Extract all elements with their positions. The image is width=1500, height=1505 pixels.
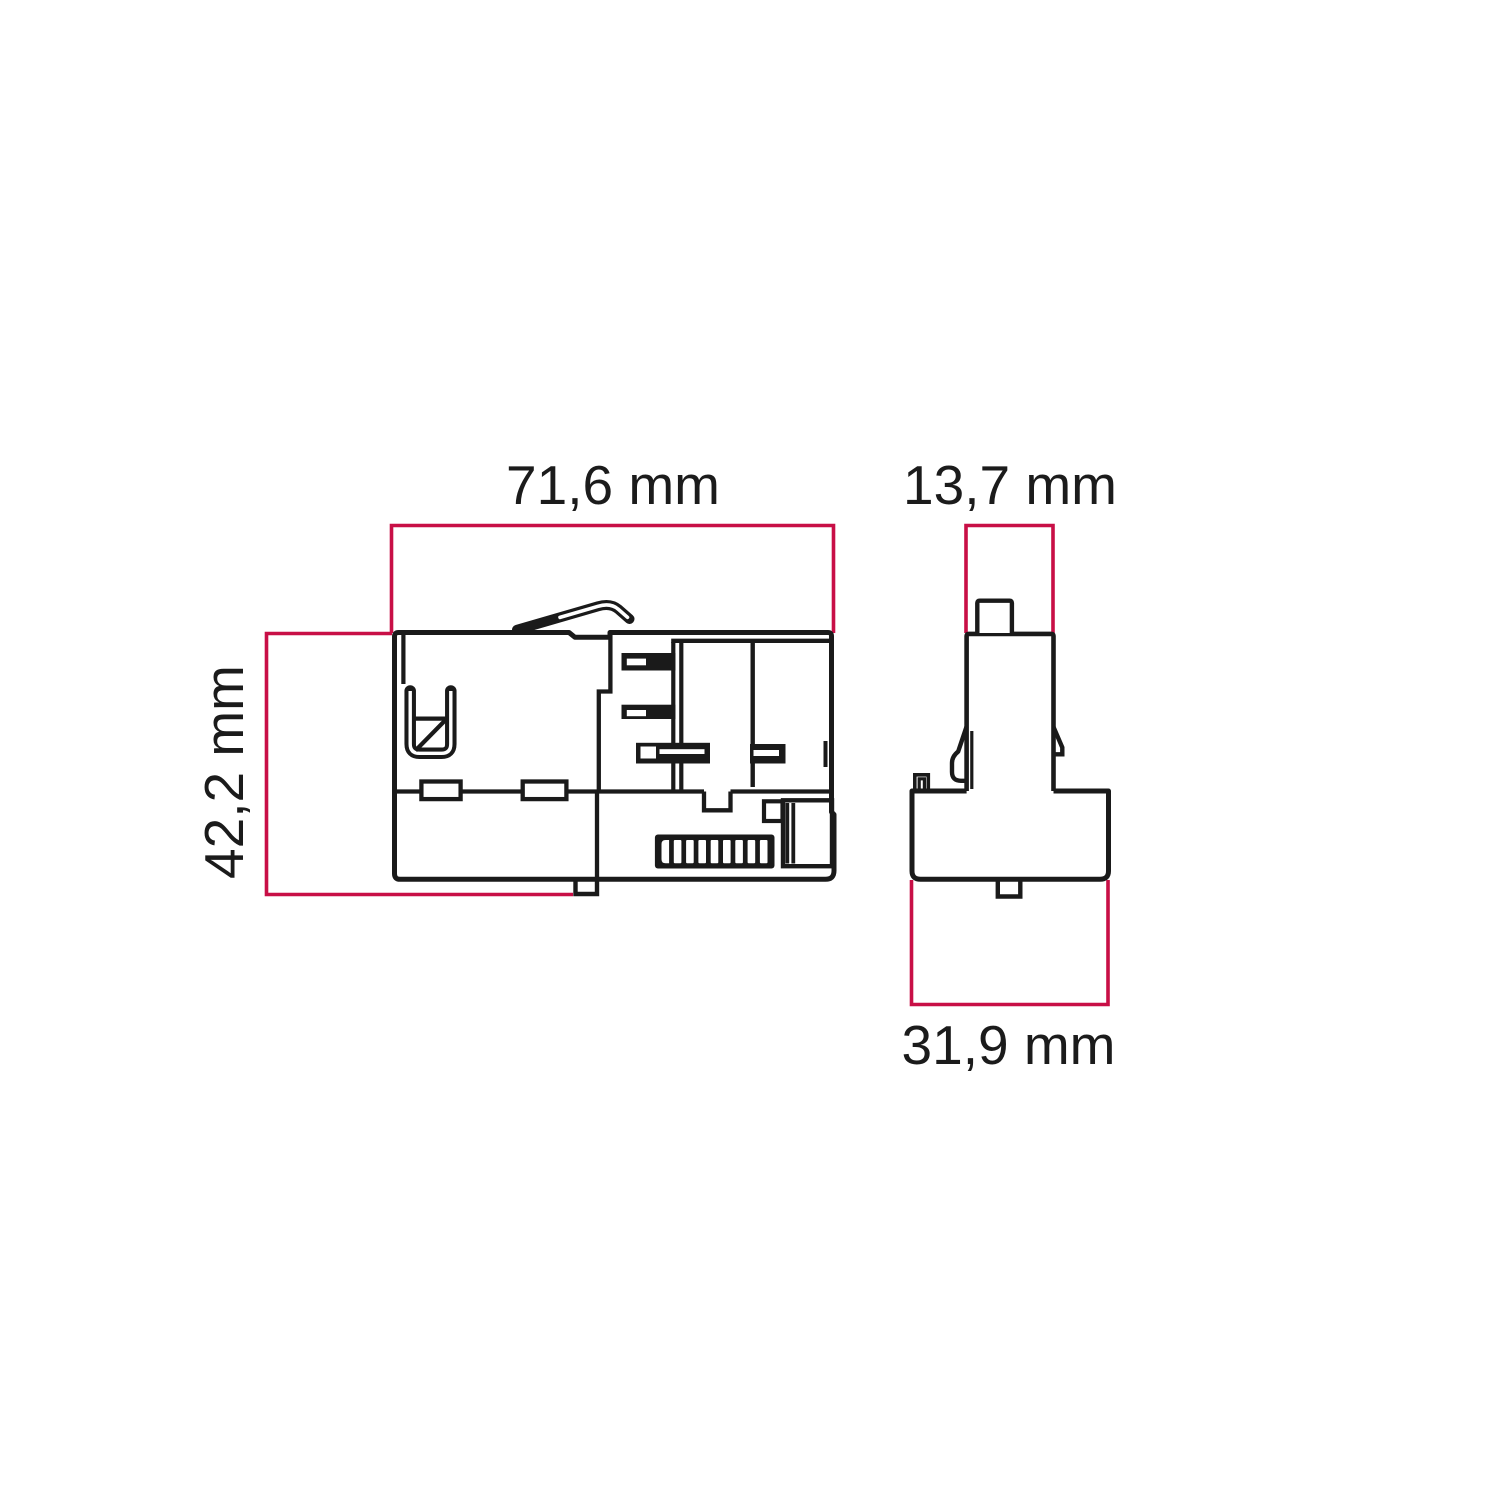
svg-text:31,9 mm: 31,9 mm	[902, 1014, 1116, 1076]
svg-text:13,7 mm: 13,7 mm	[903, 454, 1117, 516]
svg-text:42,2 mm: 42,2 mm	[193, 665, 255, 879]
svg-text:71,6 mm: 71,6 mm	[506, 454, 720, 516]
